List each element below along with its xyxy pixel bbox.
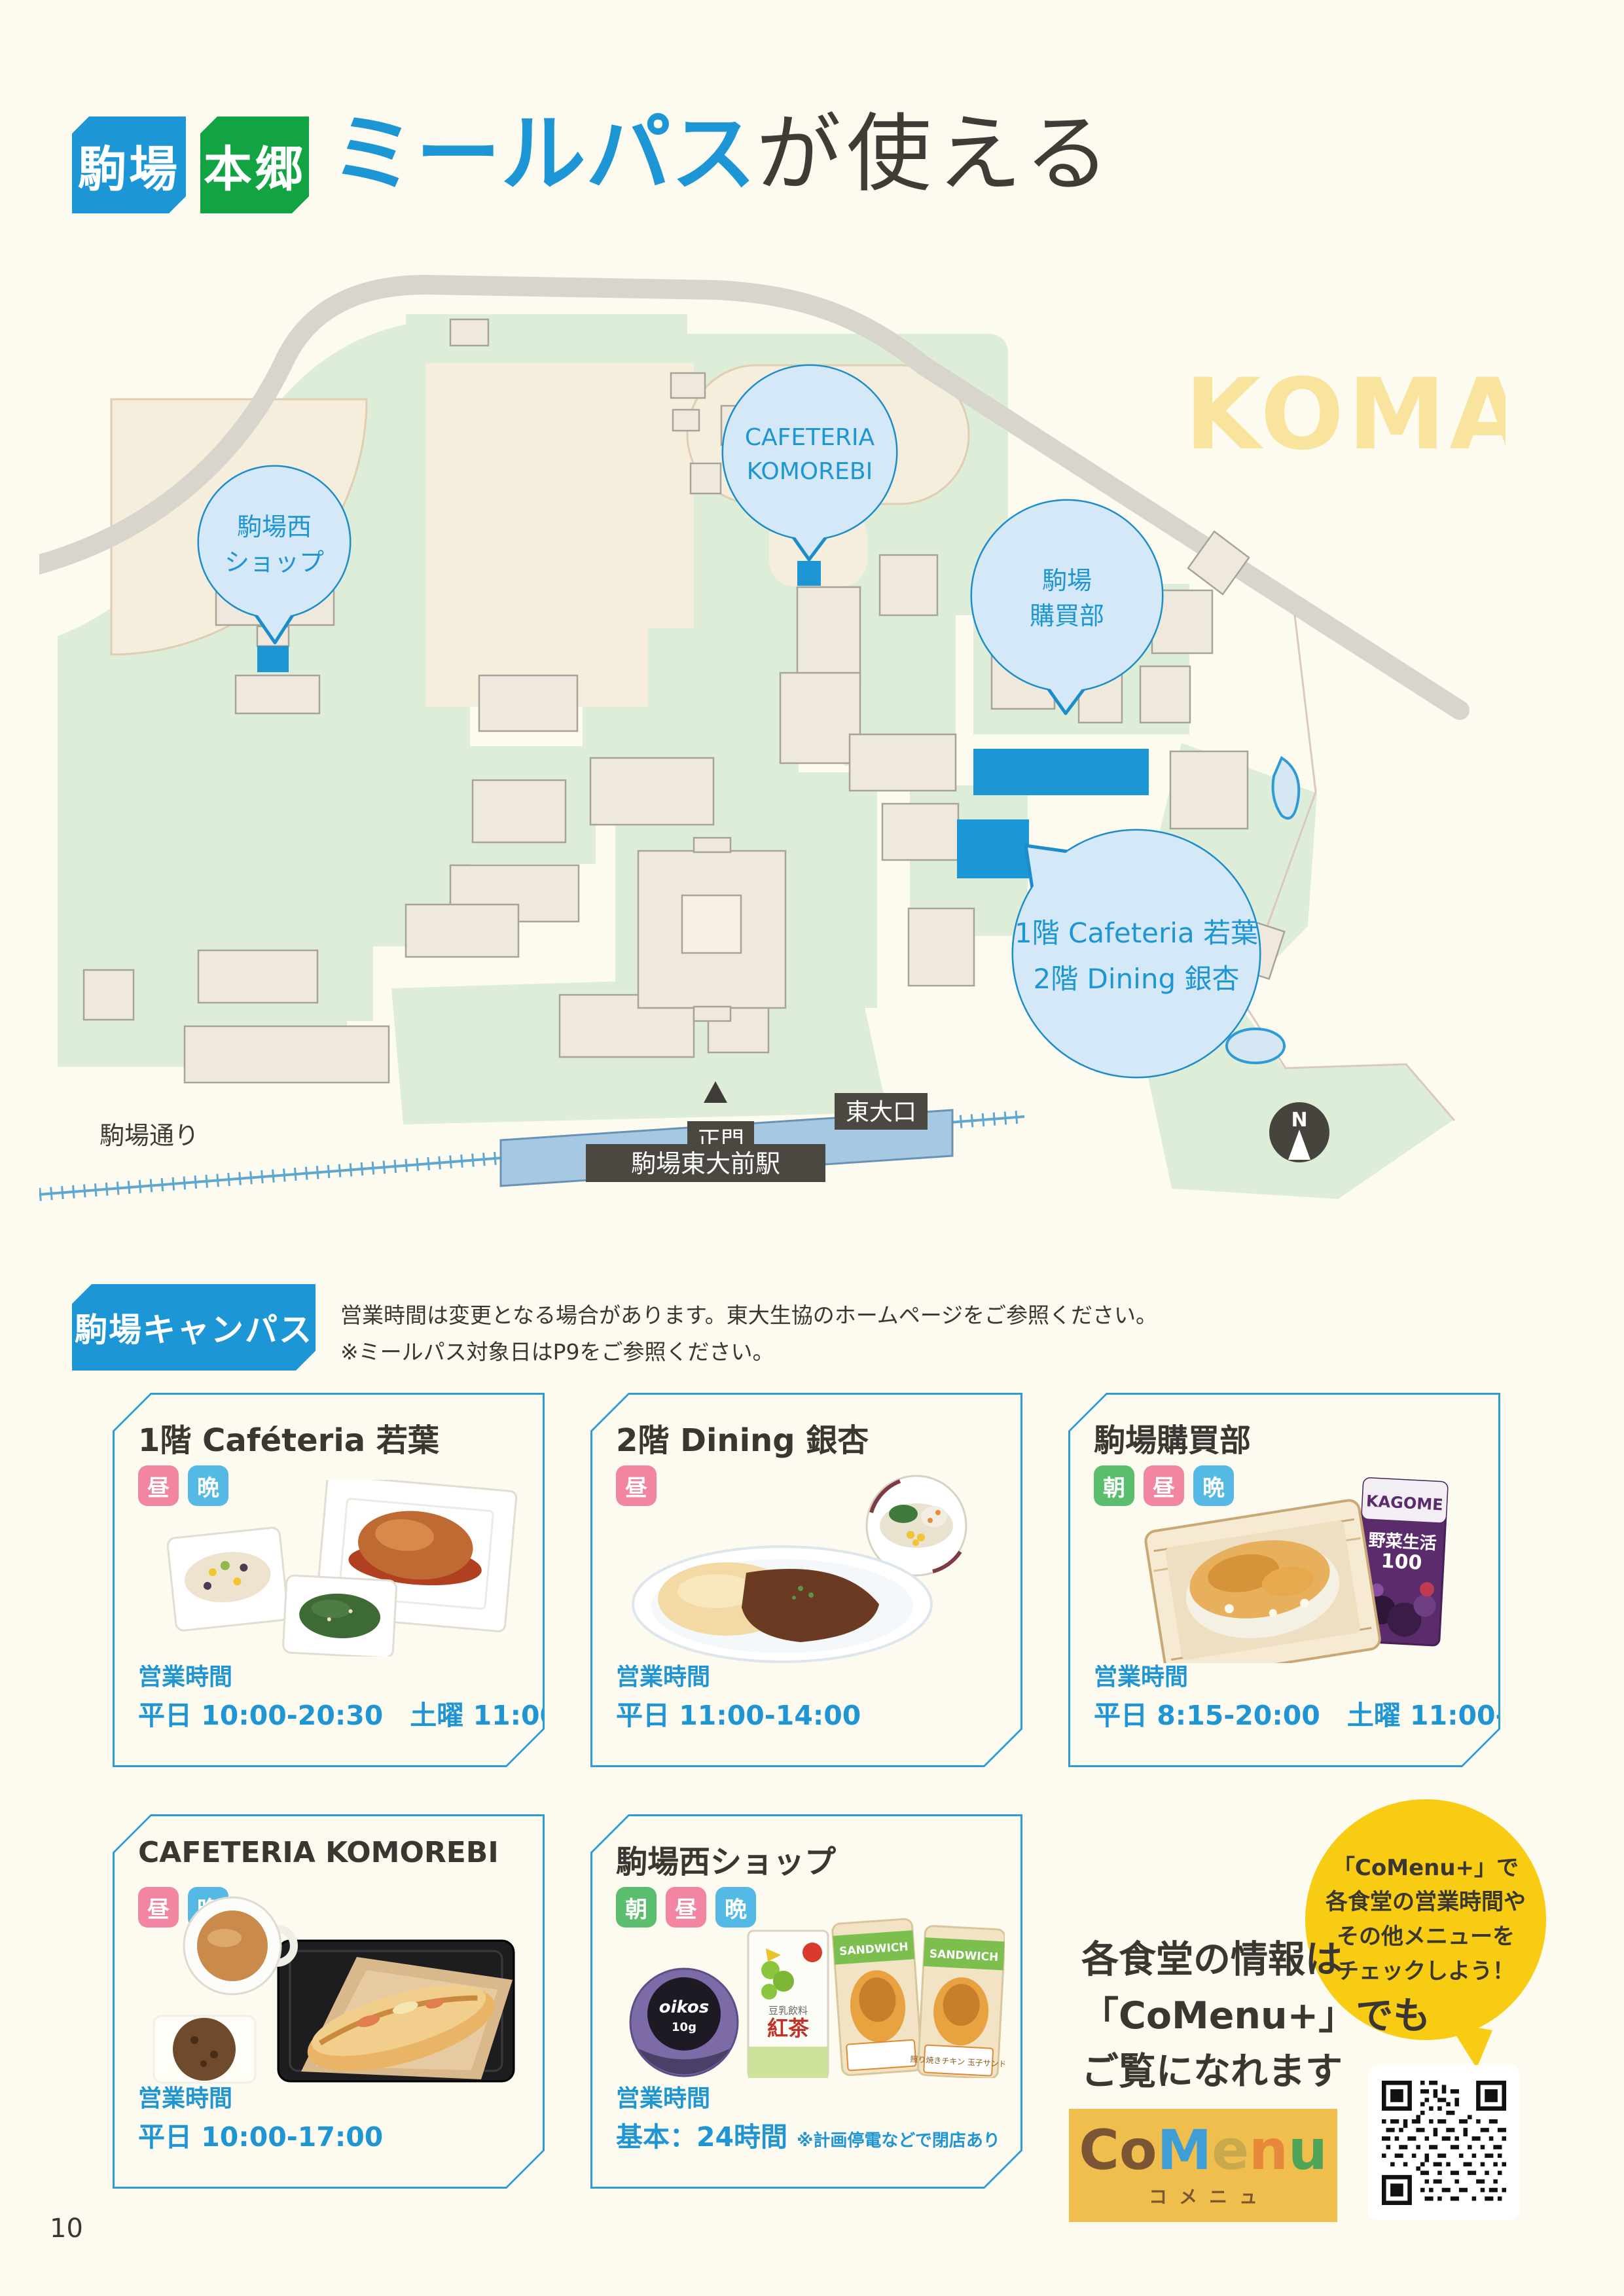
food-photo-wakaba bbox=[154, 1480, 520, 1657]
bubble-komorebi-line1: CAFETERIA bbox=[745, 424, 875, 451]
hongo-badge-label: 本郷 bbox=[204, 130, 306, 200]
comenu-letter-e: e bbox=[1212, 2123, 1249, 2178]
campus-map: 正門 東大口 駒場東大前駅 駒場通り N KOMABA 駒場西 ショップ CAF… bbox=[39, 249, 1506, 1230]
food-photo-komorebi bbox=[141, 1895, 527, 2085]
bubble-komorebi-line2: KOMOREBI bbox=[747, 458, 873, 485]
comenu-letter-u: u bbox=[1288, 2123, 1327, 2178]
bubble-kobaibu-line2: 購買部 bbox=[1030, 601, 1104, 630]
hours-komorebi: 平日 10:00-17:00 bbox=[138, 2115, 383, 2154]
sandwich-pack-1: SANDWICH bbox=[832, 1918, 922, 2075]
komaba-watermark: KOMABA bbox=[1185, 358, 1506, 472]
map-bubble-dining: 1階 Cafeteria 若葉 2階 Dining 銀杏 bbox=[1013, 831, 1259, 1077]
card-dining-icho: 2階 Dining 銀杏 昼 営業時間 平日 11:00-14:00 bbox=[590, 1393, 1022, 1767]
section-badge-komaba-campus: 駒場キャンパス bbox=[72, 1284, 316, 1371]
sandwich-pack-2: SANDWICH 照り焼きチキン 玉子サンド bbox=[909, 1925, 1005, 2078]
compass-n: N bbox=[1291, 1109, 1307, 1132]
comenu-letter-m: M bbox=[1157, 2123, 1212, 2178]
hours-label-komorebi: 営業時間 bbox=[138, 2079, 232, 2113]
hours-kobaibu: 平日 8:15-20:00 土曜 11:00-14:00 bbox=[1094, 1693, 1592, 1732]
comenu-letter-c: C bbox=[1079, 2123, 1119, 2178]
juice-product-number: 100 bbox=[1380, 1550, 1422, 1575]
hours-wakaba: 平日 10:00-20:30 土曜 11:00-14:00 bbox=[138, 1693, 655, 1732]
page-title-highlight: ミールパス bbox=[331, 104, 756, 204]
hours-icho: 平日 11:00-14:00 bbox=[616, 1693, 861, 1732]
compass-icon: N bbox=[1269, 1102, 1329, 1162]
tea-carton: 豆乳飲料 紅茶 bbox=[748, 1931, 828, 2078]
section-title: 駒場キャンパス bbox=[75, 1304, 313, 1351]
comenu-bubble-line2: 各食堂の営業時間や bbox=[1326, 1885, 1526, 1920]
hours-label-west-shop: 営業時間 bbox=[616, 2079, 710, 2113]
food-photo-west-shop: SANDWICH SANDWICH 照り焼きチキン 玉子サンド 豆乳飲料 bbox=[619, 1901, 1005, 2078]
soy-label: 豆乳飲料 bbox=[768, 2005, 808, 2017]
card-title-kobaibu: 駒場購買部 bbox=[1094, 1414, 1251, 1460]
comenu-bubble-line1: 「CoMenu+」で bbox=[1326, 1851, 1526, 1886]
comenu-letter-n: n bbox=[1249, 2123, 1288, 2178]
hours-west-shop-note: ※計画停電などで閉店あり bbox=[797, 2131, 1000, 2151]
komaba-badge-label: 駒場 bbox=[78, 130, 180, 200]
section-notes: 営業時間は変更となる場合があります。東大生協のホームページをご参照ください。 ※… bbox=[340, 1297, 1157, 1371]
hours-west-shop-main: 基本：24時間 bbox=[616, 2121, 787, 2153]
bubble-west-shop-line2: ショップ bbox=[225, 548, 324, 577]
comenu-logo: C o M e n u コメニュ bbox=[1069, 2109, 1337, 2222]
tea-label: 紅茶 bbox=[767, 2016, 810, 2041]
card-title-west-shop: 駒場西ショップ bbox=[616, 1836, 836, 1882]
food-photo-kobaibu: KAGOME 野菜生活 100 bbox=[1100, 1470, 1473, 1663]
card-title-wakaba: 1階 Caféteria 若葉 bbox=[138, 1414, 439, 1460]
yogurt-brand-label: oikos bbox=[659, 1998, 709, 2017]
todai-exit-label: 東大口 bbox=[846, 1099, 916, 1126]
comenu-info-line1: 各食堂の情報は bbox=[1081, 1932, 1430, 1988]
page-number: 10 bbox=[50, 2214, 83, 2244]
komaba-badge: 駒場 bbox=[72, 117, 186, 213]
comenu-logo-word: C o M e n u bbox=[1079, 2123, 1327, 2178]
hours-label-kobaibu: 営業時間 bbox=[1094, 1658, 1188, 1692]
hongo-badge: 本郷 bbox=[200, 117, 309, 213]
card-komaba-west-shop: 駒場西ショップ 朝 昼 晩 SANDWICH SANDWICH bbox=[590, 1814, 1022, 2189]
card-komaba-kobaibu: 駒場購買部 朝 昼 晩 KAGOME 野菜生活 100 bbox=[1068, 1393, 1500, 1767]
bubble-dining-line1: 1階 Cafeteria 若葉 bbox=[1015, 917, 1258, 949]
yogurt-cup: oikos 10g bbox=[630, 1969, 738, 2076]
comenu-info-line2: 「CoMenu+」でも bbox=[1081, 1988, 1430, 2045]
bubble-west-shop-line1: 駒場西 bbox=[237, 512, 312, 541]
page-title: ミールパスが使える bbox=[331, 111, 1115, 196]
page-title-rest: が使える bbox=[756, 104, 1115, 204]
section-note-1: 営業時間は変更となる場合があります。東大生協のホームページをご参照ください。 bbox=[340, 1297, 1157, 1334]
qr-code-pattern bbox=[1382, 2081, 1506, 2205]
comenu-logo-kana: コメニュ bbox=[1137, 2183, 1269, 2209]
card-cafeteria-komorebi: CAFETERIA KOMOREBI 昼 晩 bbox=[113, 1814, 545, 2189]
hours-west-shop: 基本：24時間※計画停電などで閉店あり bbox=[616, 2115, 1000, 2154]
card-title-komorebi: CAFETERIA KOMOREBI bbox=[138, 1836, 499, 1869]
street-label: 駒場通り bbox=[99, 1121, 199, 1150]
section-note-2: ※ミールパス対象日はP9をご参照ください。 bbox=[340, 1334, 1157, 1371]
bubble-kobaibu-line1: 駒場 bbox=[1042, 566, 1092, 595]
yogurt-grams-label: 10g bbox=[672, 2020, 696, 2034]
qr-code bbox=[1368, 2065, 1520, 2220]
hours-label-wakaba: 営業時間 bbox=[138, 1658, 232, 1692]
hours-label-icho: 営業時間 bbox=[616, 1658, 710, 1692]
card-cafeteria-wakaba: 1階 Caféteria 若葉 昼 晩 bbox=[113, 1393, 545, 1767]
station-label: 駒場東大前駅 bbox=[631, 1149, 780, 1178]
bubble-dining-line2: 2階 Dining 銀杏 bbox=[1033, 963, 1239, 995]
food-photo-icho bbox=[625, 1473, 998, 1663]
comenu-letter-o: o bbox=[1119, 2123, 1157, 2178]
card-title-icho: 2階 Dining 銀杏 bbox=[616, 1414, 869, 1460]
